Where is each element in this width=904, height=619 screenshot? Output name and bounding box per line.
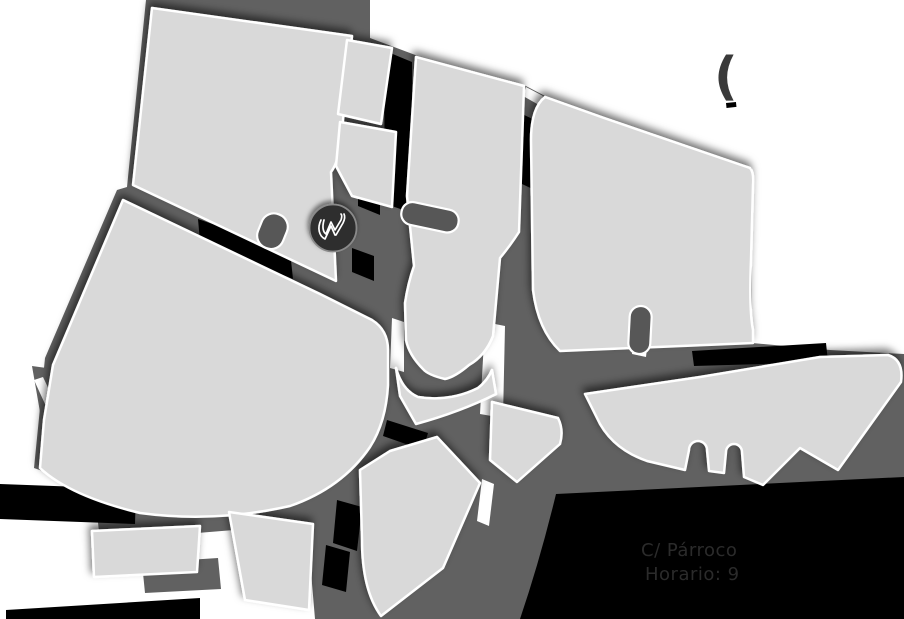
city-block [229, 512, 313, 610]
dead-end-stub [628, 305, 652, 354]
city-block [92, 526, 200, 577]
black-shadow-area [6, 598, 200, 619]
city-block [338, 40, 392, 124]
bracket-glyph: ( [714, 47, 738, 107]
white-street [390, 318, 404, 372]
hours-label: Horario: 9 [645, 564, 740, 585]
location-marker[interactable] [310, 205, 357, 252]
black-shadow-area [333, 500, 362, 551]
street-map: ( C/ Párroco Horario: 9 [0, 0, 904, 619]
map-canvas: ( C/ Párroco Horario: 9 [0, 0, 904, 619]
marker-circle[interactable] [310, 205, 357, 252]
address-label: C/ Párroco [641, 540, 737, 561]
black-shadow-area [322, 545, 350, 592]
